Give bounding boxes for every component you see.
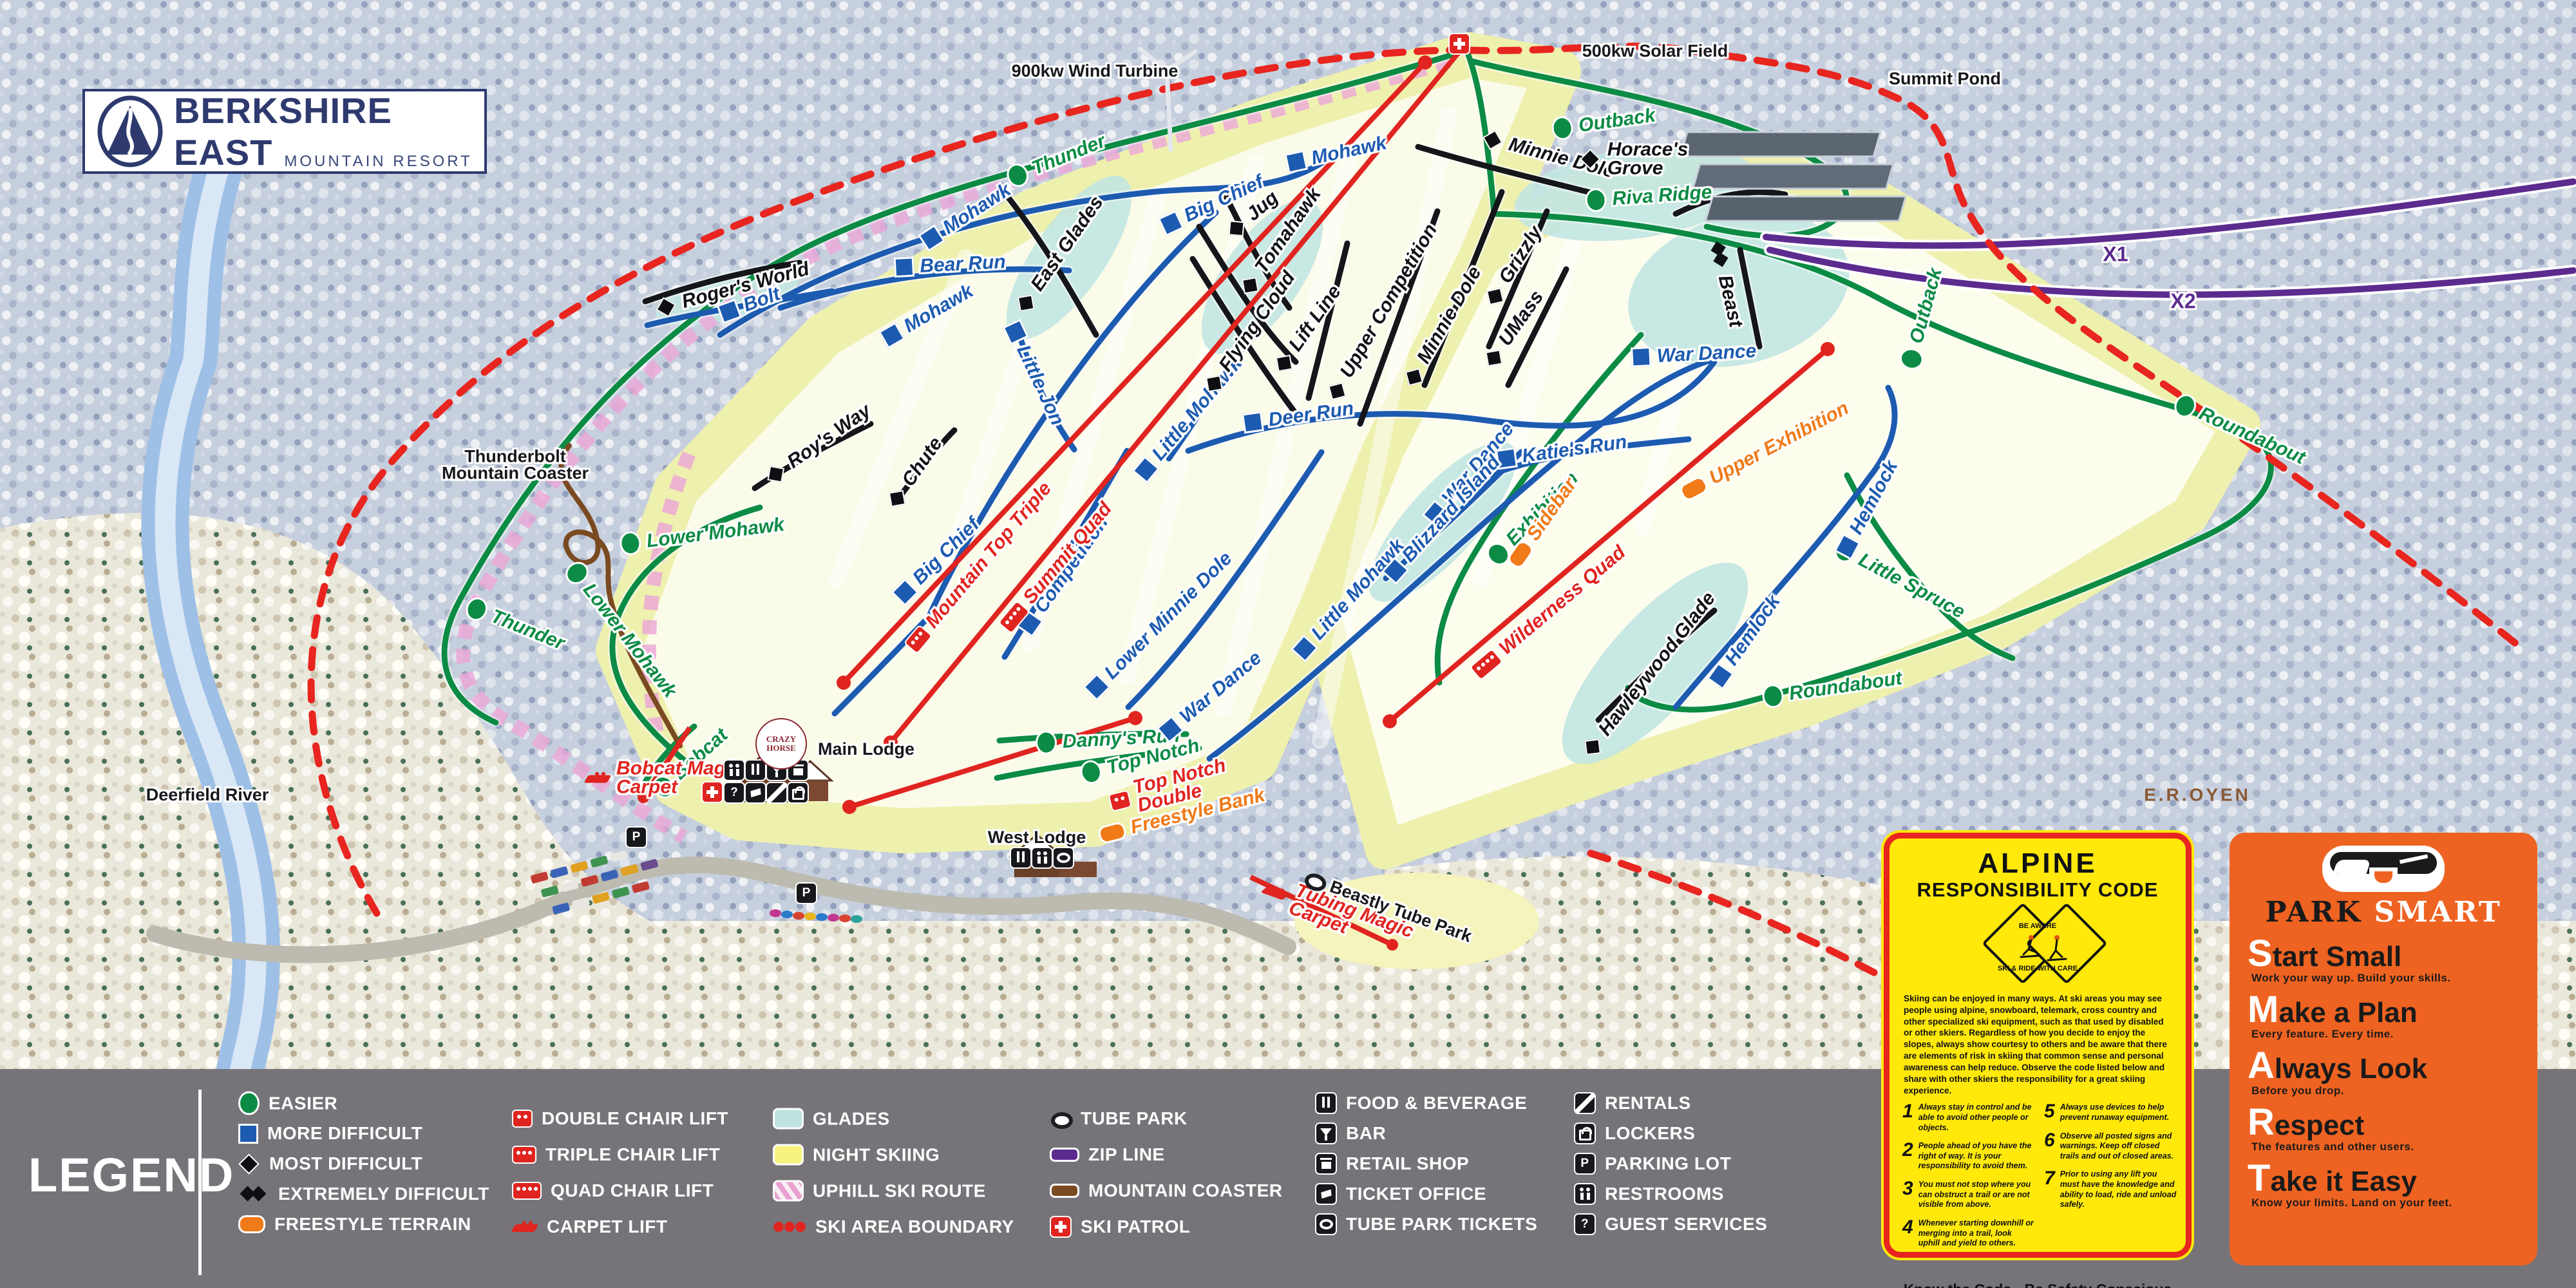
- alpine-item: 6Observe all posted signs and warnings. …: [2044, 1132, 2177, 1162]
- park-smart-item: Take it Easy Know your limits. Land on y…: [2248, 1162, 2519, 1209]
- park-smart-item: Start Small Work your way up. Build your…: [2248, 937, 2519, 985]
- logo-line1: BERKSHIRE: [174, 90, 473, 131]
- alpine-item: 7Prior to using any lift you must have t…: [2044, 1170, 2177, 1210]
- trail-map: BERKSHIRE EAST MOUNTAIN RESORT ThunderOu…: [0, 0, 2576, 1288]
- park-smart-title: PARK SMART: [2248, 896, 2519, 929]
- park-smart-items: Start Small Work your way up. Build your…: [2248, 937, 2519, 1209]
- skier-figures-icon: [2017, 933, 2072, 962]
- alpine-item: 2People ahead of you have the right of w…: [1902, 1141, 2035, 1171]
- alpine-footer: Know the Code - Be Safety Conscious It i…: [1902, 1281, 2173, 1288]
- alpine-responsibility-code-panel: ALPINE RESPONSIBILITY CODE BE AWARE SKI …: [1884, 833, 2192, 1258]
- park-smart-item: Always Look Before you drop.: [2248, 1049, 2519, 1097]
- park-smart-panel: PARK SMART Start Small Work your way up.…: [2230, 833, 2537, 1265]
- alpine-subtitle: RESPONSIBILITY CODE: [1902, 878, 2173, 902]
- logo-line2: EAST: [174, 131, 272, 173]
- park-smart-item: Respect The features and other users.: [2248, 1106, 2519, 1153]
- sign-top-text: BE AWARE: [1902, 922, 2173, 930]
- sign-bottom-text: SKI & RIDE WITH CARE: [1902, 965, 2173, 972]
- park-smart-item: Make a Plan Every feature. Every time.: [2248, 993, 2519, 1041]
- alpine-item: 1Always stay in control and be able to a…: [1902, 1103, 2035, 1133]
- logo-subtitle: MOUNTAIN RESORT: [284, 153, 472, 173]
- park-word: PARK: [2265, 896, 2362, 929]
- berkshire-east-logo: BERKSHIRE EAST MOUNTAIN RESORT: [82, 89, 487, 174]
- legend-title: LEGEND: [28, 1148, 234, 1202]
- alpine-title: ALPINE: [1902, 848, 2173, 880]
- alpine-item: 3You must not stop where you can obstruc…: [1902, 1180, 2035, 1210]
- mountain-logo-icon: [97, 95, 164, 167]
- smart-word: SMART: [2374, 896, 2502, 929]
- alpine-item: 5Always use devices to help prevent runa…: [2044, 1103, 2177, 1122]
- ski-ride-with-care-sign: BE AWARE SKI & RIDE WITH CARE: [1902, 905, 2173, 988]
- alpine-items: 1Always stay in control and be able to a…: [1902, 1103, 2173, 1280]
- alpine-intro: Skiing can be enjoyed in many ways. At s…: [1904, 993, 2172, 1096]
- alpine-item: 4Whenever starting downhill or merging i…: [1902, 1218, 2035, 1249]
- goggles-icon: [2322, 846, 2445, 892]
- alpine-footer-line1: Know the Code - Be Safety Conscious: [1902, 1281, 2173, 1288]
- legend-divider: [198, 1090, 202, 1275]
